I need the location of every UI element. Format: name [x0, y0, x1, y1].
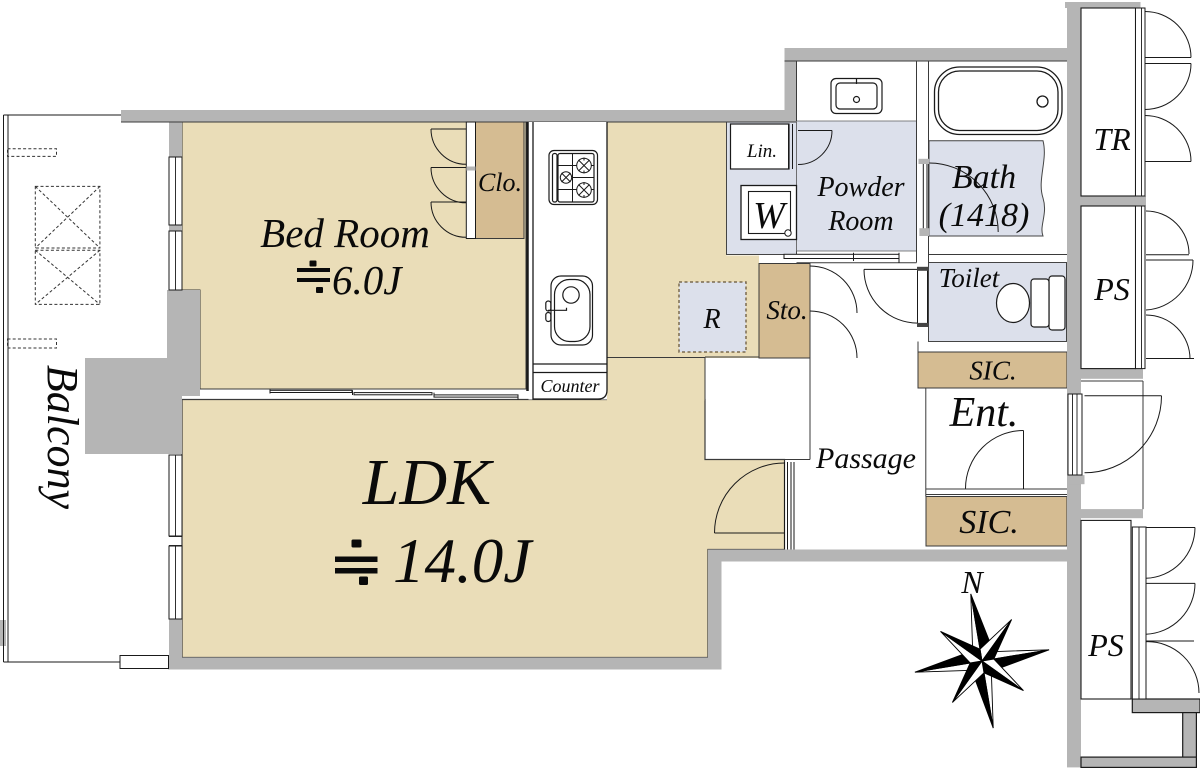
svg-text:Room: Room [827, 206, 893, 237]
svg-text:N: N [960, 564, 984, 600]
svg-text:SIC.: SIC. [959, 504, 1019, 541]
svg-text:TR: TR [1093, 121, 1131, 157]
svg-text:Lin.: Lin. [746, 141, 777, 162]
svg-text:Counter: Counter [540, 376, 600, 396]
svg-text:(1418): (1418) [939, 197, 1030, 234]
svg-text:W: W [753, 195, 788, 237]
svg-text:PS: PS [1093, 271, 1130, 307]
svg-text:Balcony: Balcony [38, 365, 87, 510]
svg-text:PS: PS [1087, 627, 1124, 663]
svg-text:Passage: Passage [815, 442, 916, 475]
svg-text:14.0J: 14.0J [393, 526, 534, 596]
svg-text:Powder: Powder [816, 172, 904, 203]
svg-text:Sto.: Sto. [766, 295, 807, 325]
svg-text:6.0J: 6.0J [332, 257, 403, 303]
svg-text:Toilet: Toilet [939, 263, 1001, 293]
svg-text:Clo.: Clo. [478, 168, 522, 197]
svg-text:Bed Room: Bed Room [260, 210, 430, 256]
svg-text:R: R [702, 304, 720, 335]
svg-text:Bath: Bath [952, 159, 1016, 196]
svg-text:SIC.: SIC. [969, 356, 1016, 386]
svg-text:Ent.: Ent. [949, 390, 1019, 436]
svg-text:LDK: LDK [362, 446, 494, 519]
